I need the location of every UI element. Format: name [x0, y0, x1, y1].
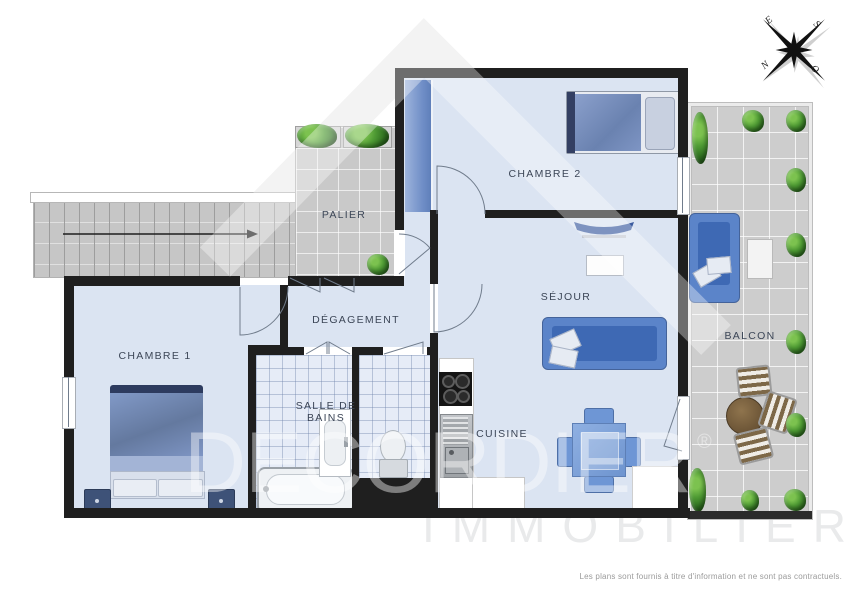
drainboard: [443, 417, 468, 445]
room-label-sejour: SÉJOUR: [541, 291, 591, 303]
window: [62, 377, 76, 429]
plant: [786, 110, 806, 132]
counter: [632, 466, 680, 509]
balcony-edge: [688, 511, 812, 519]
bed-pillow: [113, 479, 157, 497]
plant: [345, 124, 389, 148]
plant: [784, 489, 806, 511]
wall: [427, 347, 438, 355]
wall: [485, 210, 688, 218]
plant: [297, 124, 337, 148]
nightstand-knob: [219, 499, 223, 503]
wall: [288, 276, 404, 286]
floor-plan-canvas: DECORDIER® IMMOBILIER: [0, 0, 848, 600]
plant: [786, 233, 806, 257]
wall: [64, 276, 74, 377]
footer-disclaimer: Les plans sont fournis à titre d'informa…: [580, 572, 843, 581]
room-label-chambre-2: CHAMBRE 2: [509, 168, 582, 180]
salle-de-bains-line2: BAINS: [296, 412, 357, 424]
plant: [367, 254, 389, 275]
bed-pillow: [158, 479, 203, 497]
duct-shaft: [352, 478, 438, 512]
chair: [584, 476, 614, 493]
outdoor-side-table: [747, 239, 773, 279]
stairs: [33, 200, 297, 278]
wall: [678, 458, 688, 518]
bed-duvet-fold: [110, 456, 203, 471]
kitchen-sink: [440, 414, 473, 478]
room-label-degagement: DÉGAGEMENT: [312, 314, 400, 326]
dining-table-top: [581, 432, 619, 470]
single-bed: [566, 91, 680, 154]
plant: [786, 168, 806, 192]
bathtub-basin: [266, 474, 345, 505]
bed-pillow: [645, 97, 675, 150]
balcony-door-opening: [677, 396, 690, 460]
plant: [689, 468, 706, 512]
cushion: [706, 256, 731, 275]
entrance-door-opening: [394, 230, 405, 276]
toilet-tank: [379, 459, 408, 478]
dining-table: [572, 423, 626, 477]
room-label-palier: PALIER: [322, 209, 366, 221]
faucet: [449, 450, 454, 455]
wall: [280, 285, 288, 351]
coffee-table: [586, 255, 624, 276]
wardrobe: [405, 80, 433, 212]
wall: [430, 218, 438, 284]
faucet: [344, 437, 348, 447]
sofa: [542, 317, 667, 370]
room-label-chambre-1: CHAMBRE 1: [119, 350, 192, 362]
room-label-salle-de-bains: SALLE DE BAINS: [296, 400, 357, 424]
stair-nosing: [30, 192, 299, 203]
floor-chambre-1-ne: [248, 285, 280, 347]
wall: [64, 276, 240, 286]
faucet: [263, 486, 269, 492]
plant: [742, 110, 764, 132]
chair: [624, 437, 641, 467]
compass-rose-icon: [748, 6, 848, 102]
burner: [442, 375, 455, 388]
wall: [256, 347, 304, 355]
wall: [678, 68, 688, 157]
double-bed: [108, 385, 209, 512]
bed-duvet: [575, 94, 641, 151]
floor-vestibule: [404, 218, 430, 285]
salle-de-bains-line1: SALLE DE: [296, 400, 357, 412]
wall: [430, 210, 438, 218]
burner: [443, 389, 458, 404]
burner: [455, 374, 470, 389]
plant: [786, 330, 806, 354]
room-label-balcon: BALCON: [725, 330, 776, 342]
nightstand-knob: [95, 499, 99, 503]
outdoor-sofa: [689, 213, 740, 303]
room-label-cuisine: CUISINE: [476, 428, 528, 440]
toilet: [378, 430, 408, 478]
window: [677, 157, 690, 215]
wall: [352, 347, 383, 355]
bed-duvet: [110, 393, 203, 456]
plant: [786, 413, 806, 437]
wall: [248, 345, 256, 518]
cooktop: [439, 372, 472, 406]
wall: [395, 68, 404, 230]
plant: [741, 490, 759, 511]
washbasin-bowl: [324, 420, 346, 466]
burner: [457, 390, 470, 403]
wall: [64, 427, 74, 518]
bed-headboard: [567, 92, 575, 153]
counter: [472, 477, 525, 510]
wall: [678, 213, 688, 396]
tv-shelf: [582, 235, 626, 238]
wall: [395, 68, 688, 78]
plant: [692, 112, 708, 164]
